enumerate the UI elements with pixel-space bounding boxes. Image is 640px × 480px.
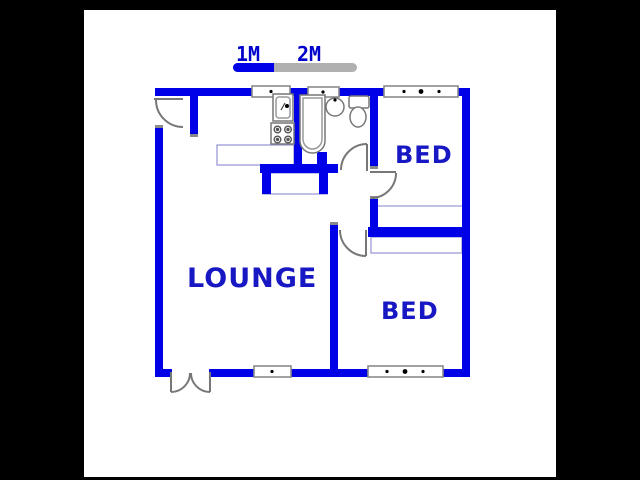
wall-bed1-west xyxy=(370,199,378,228)
bathtub-inner xyxy=(303,98,322,149)
floorplan-drawing xyxy=(0,0,640,480)
wall-cap xyxy=(370,166,378,169)
room-label-bedroom1: BED xyxy=(395,141,449,169)
lounge-counter-post-right xyxy=(319,173,328,194)
window-dot xyxy=(385,370,388,373)
stove-burner-dot xyxy=(277,129,279,131)
kitchen-counter xyxy=(217,145,294,165)
wall-cap xyxy=(155,125,163,128)
built-in-cupboard-bed2 xyxy=(371,237,462,253)
window-dot xyxy=(402,90,405,93)
wall-cap xyxy=(190,134,198,137)
scale-label-1m: 1M xyxy=(236,42,260,66)
window-dot xyxy=(421,370,424,373)
bathroom-door-arc xyxy=(341,144,367,170)
stove-burner-dot xyxy=(287,139,289,141)
scale-bar-1m-segment-end xyxy=(266,63,274,72)
french-door-left-arc xyxy=(171,373,190,392)
scale-label-2m: 2M xyxy=(297,42,321,66)
window-dot xyxy=(419,89,424,94)
wall-bottom-left-stub xyxy=(155,369,172,377)
window-dot xyxy=(437,90,440,93)
sink-faucet xyxy=(285,104,289,108)
room-label-bedroom2: BED xyxy=(381,297,435,325)
window-dot xyxy=(321,90,324,93)
toilet-bowl xyxy=(350,107,366,127)
stove-burner-dot xyxy=(277,139,279,141)
wall-bath-bed1-divider xyxy=(370,96,378,166)
bed2-door-arc xyxy=(340,230,366,256)
bed1-door-arc xyxy=(371,173,396,198)
wall-lounge-bed2-divider xyxy=(330,225,338,377)
window-dot xyxy=(270,370,273,373)
wall-entry-stub xyxy=(190,96,198,134)
lounge-counter xyxy=(263,173,327,194)
stove-burner-dot xyxy=(287,129,289,131)
wall-left xyxy=(155,128,163,377)
entry-door-arc xyxy=(156,100,183,127)
french-door-right-arc xyxy=(191,373,210,392)
lounge-counter-post-left xyxy=(262,173,271,194)
floorplan-image: 1M 2M LOUNGE BED BED xyxy=(0,0,640,480)
window-dot xyxy=(269,90,272,93)
wall-cap xyxy=(330,222,338,225)
toilet-tank xyxy=(349,96,369,108)
basin-faucet xyxy=(333,98,336,101)
wall-tub-stub xyxy=(317,152,327,164)
window-dot xyxy=(403,369,408,374)
room-label-lounge: LOUNGE xyxy=(187,263,295,294)
wall-kitchen-bottom xyxy=(260,164,338,173)
wall-bed1-bed2-divider xyxy=(368,227,470,237)
